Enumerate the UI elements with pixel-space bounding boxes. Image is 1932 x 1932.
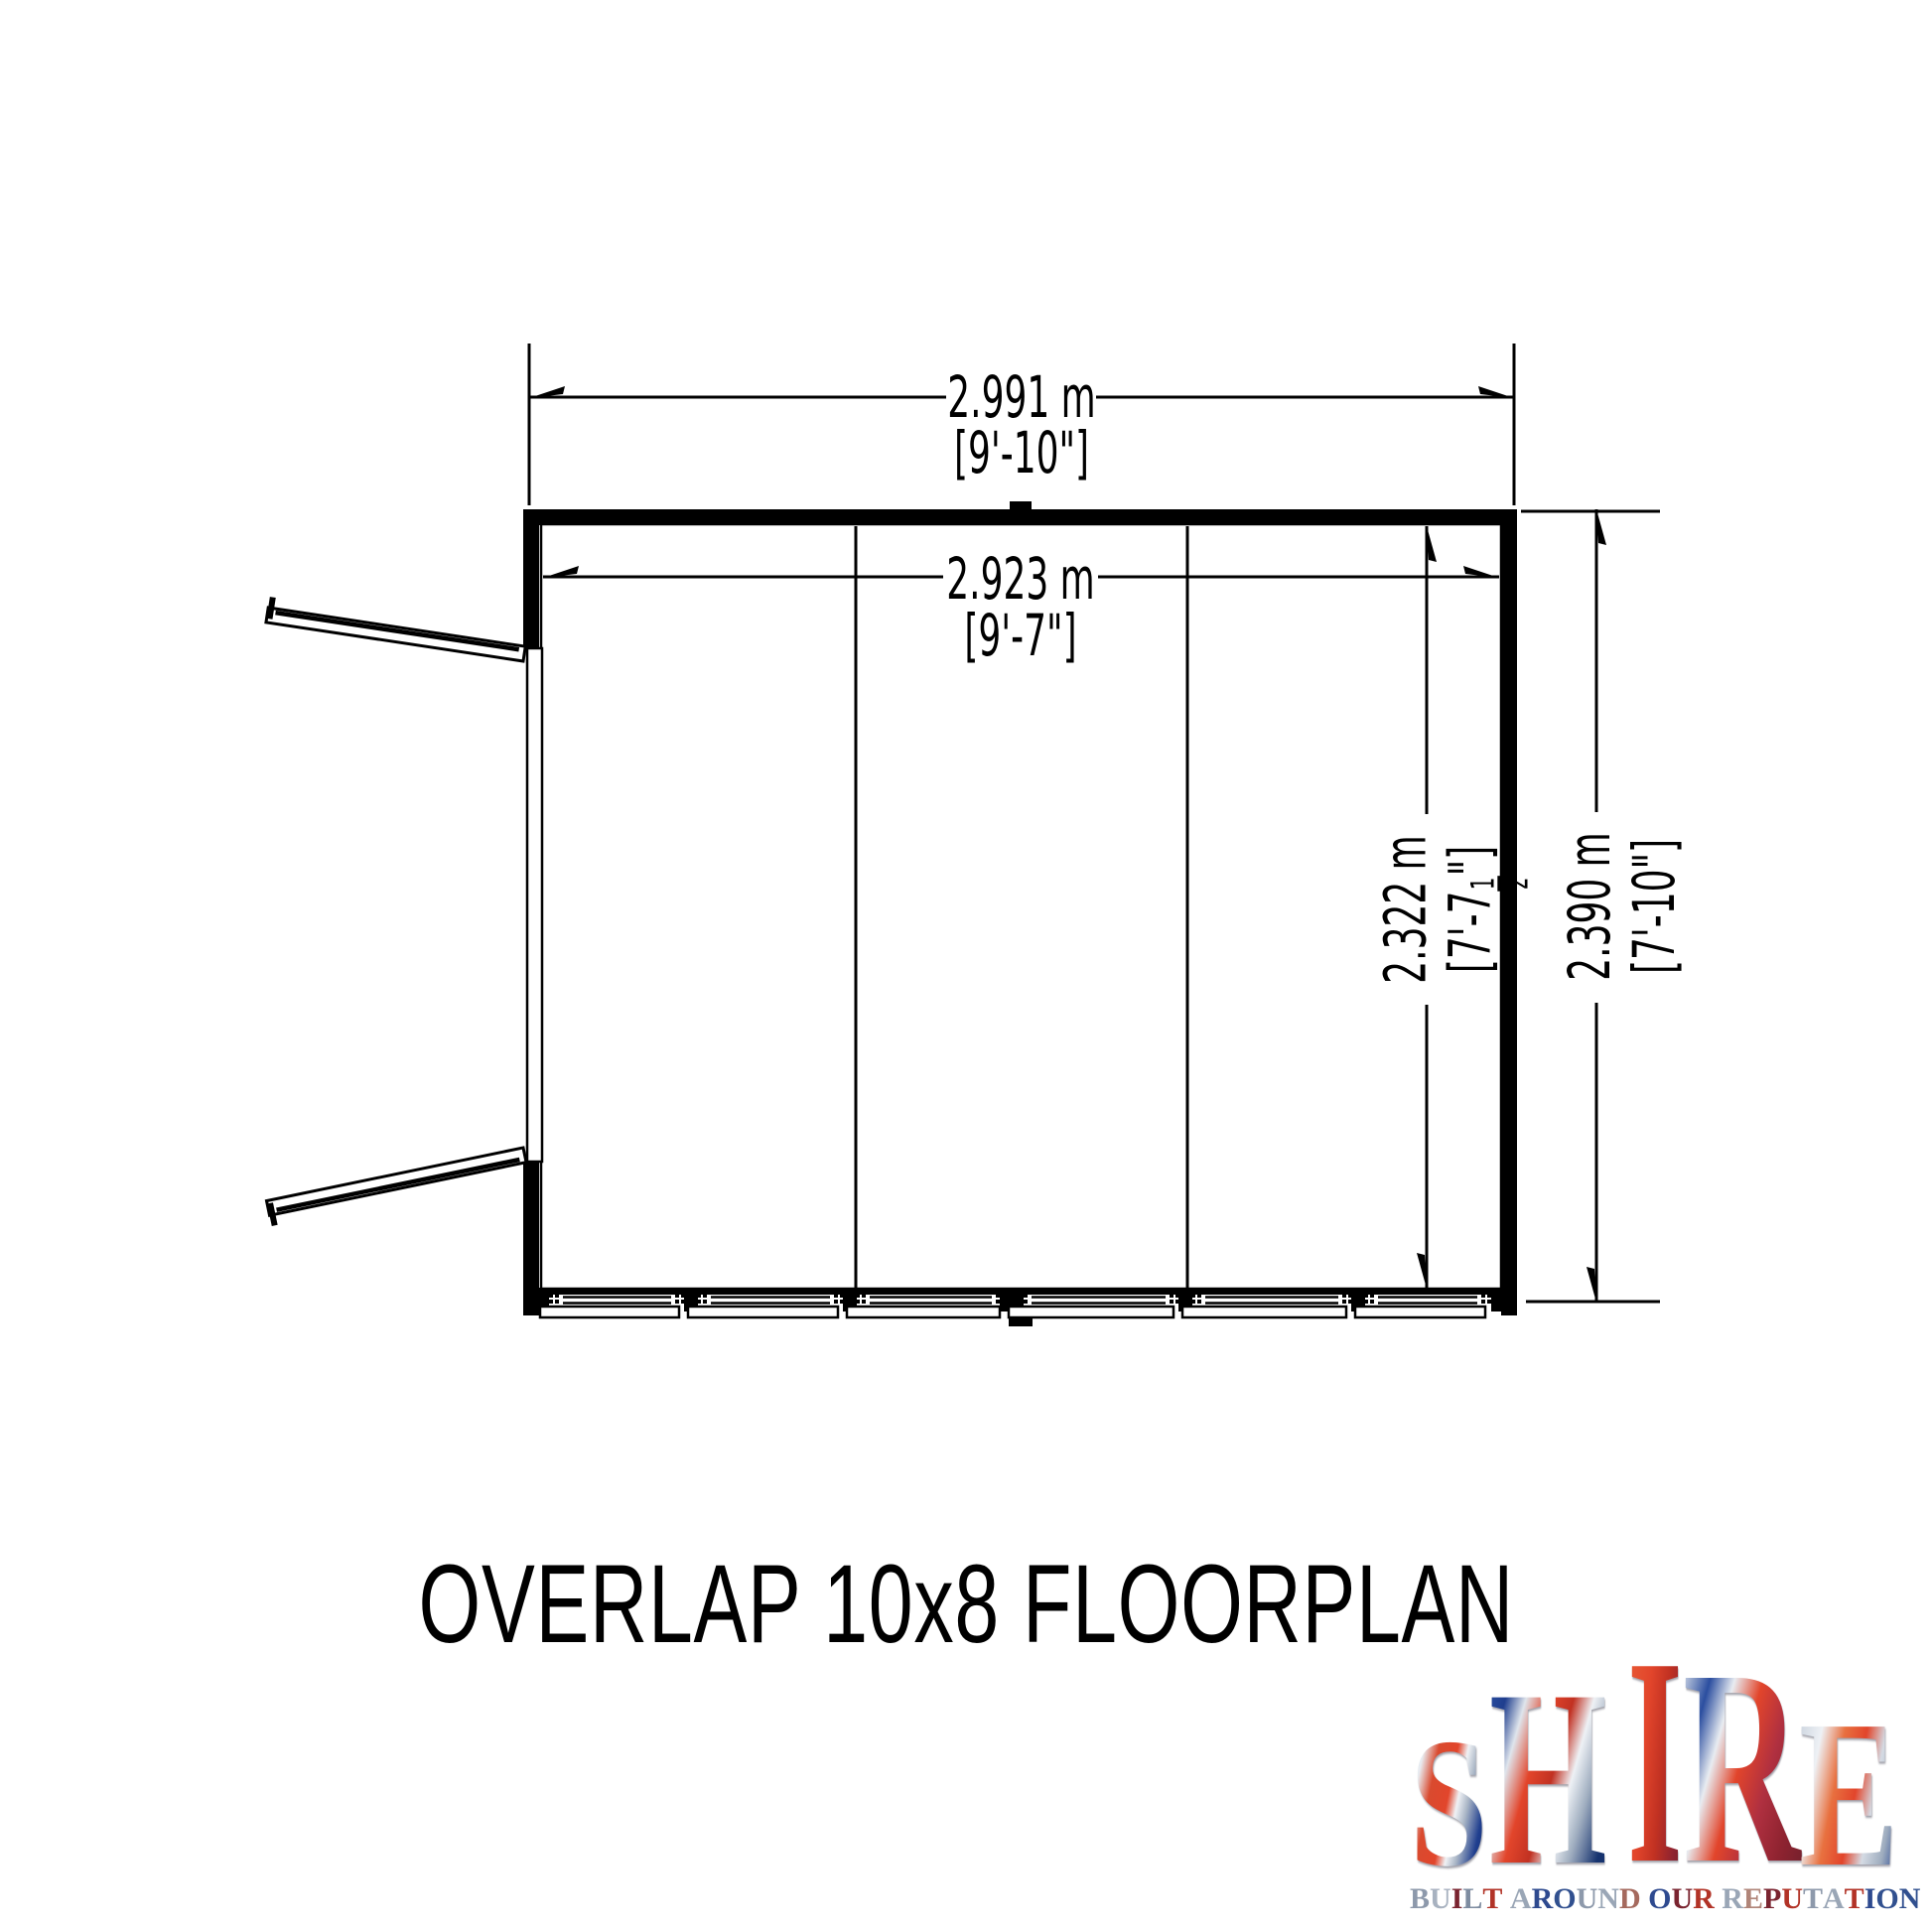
logo-letter-i: I — [1627, 1650, 1683, 1872]
panel-dot — [1197, 1294, 1201, 1298]
tagline-letter: D — [1619, 1884, 1641, 1914]
door-bottom-leaf — [266, 1148, 528, 1226]
panel-dot — [996, 1294, 1000, 1298]
page: 2.991 m [9'-10"] 2.923 m [9'-7"] 2.322 m… — [0, 0, 1932, 1932]
tagline-letter: R — [1693, 1884, 1715, 1914]
panel-dot — [1197, 1300, 1201, 1304]
logo-letter-e: E — [1799, 1715, 1898, 1872]
panel-dot — [555, 1300, 559, 1304]
tagline-letter: E — [1743, 1884, 1763, 1914]
tagline-letter: O — [1553, 1884, 1576, 1914]
panel-dot — [1487, 1300, 1491, 1304]
panel-offset-outline — [540, 1307, 679, 1317]
panel-dot — [549, 1294, 553, 1298]
logo-letter-s: S — [1410, 1734, 1488, 1873]
dim-depth-inner-imperial: [7'-712"] — [1438, 835, 1531, 983]
dim-depth-outer-imperial: [7'-10"] — [1622, 832, 1687, 980]
tagline-letter: T — [1482, 1884, 1502, 1914]
panel-offset-outline — [847, 1307, 1000, 1317]
dim-width-outer-imperial: [9'-10"] — [954, 424, 1089, 482]
panel-dot — [1342, 1294, 1346, 1298]
panel-dot — [703, 1300, 707, 1304]
panel-dot — [834, 1300, 838, 1304]
panel-dot — [1481, 1294, 1485, 1298]
panel-dot — [834, 1294, 838, 1298]
tagline-letter: U — [1577, 1884, 1598, 1914]
panel-dot — [1487, 1294, 1491, 1298]
panel-dot — [549, 1300, 553, 1304]
panel-dot — [862, 1294, 866, 1298]
panel-offset-outline — [1182, 1307, 1346, 1317]
tagline-letter: U — [1430, 1884, 1451, 1914]
panel-dot — [862, 1300, 866, 1304]
tagline-letter: U — [1781, 1884, 1803, 1914]
tagline-letter: T — [1845, 1884, 1864, 1914]
tagline-letter: P — [1763, 1884, 1781, 1914]
panel-dot — [555, 1294, 559, 1298]
door-frame — [527, 648, 542, 1162]
tagline-letter: O — [1648, 1884, 1671, 1914]
tagline-letter: T — [1803, 1884, 1823, 1914]
tagline-letter: N — [1899, 1884, 1921, 1914]
dim-depth-outer: 2.390 m [7'-10"] — [1596, 906, 1836, 1035]
dim-width-inner-meters: 2.923 m — [946, 550, 1094, 608]
page-title: OVERLAP 10x8 FLOORPLAN — [418, 1549, 1513, 1660]
panel-dot — [703, 1294, 707, 1298]
wall-left-upper — [523, 525, 539, 648]
panel-joint-block — [1491, 1288, 1501, 1311]
tagline-letter: I — [1864, 1884, 1876, 1914]
panel-dot — [675, 1300, 679, 1304]
panel-dot — [1024, 1300, 1028, 1304]
tagline-space — [1502, 1884, 1510, 1914]
tagline-letter: O — [1875, 1884, 1898, 1914]
panel-dot — [1370, 1300, 1374, 1304]
panel-dot — [1370, 1294, 1374, 1298]
tagline-letter: L — [1462, 1884, 1482, 1914]
dim-depth-outer-meters: 2.390 m — [1558, 832, 1622, 980]
tagline-letter: B — [1410, 1884, 1430, 1914]
logo-tagline: BUILT AROUND OUR REPUTATION — [1410, 1884, 1902, 1914]
door-top-leaf — [266, 597, 527, 661]
dim-depth-inner-meters: 2.322 m — [1373, 835, 1438, 983]
panel-dot — [1170, 1294, 1173, 1298]
panel-dot — [675, 1294, 679, 1298]
tagline-letter: R — [1722, 1884, 1743, 1914]
panel-dot — [1024, 1294, 1028, 1298]
dim-width-outer-meters: 2.991 m — [947, 368, 1095, 426]
tagline-space — [1641, 1884, 1649, 1914]
panel-offset-outline — [1355, 1307, 1485, 1317]
tagline-letter: N — [1597, 1884, 1619, 1914]
wall-top — [523, 509, 1517, 525]
panel-dot — [996, 1300, 1000, 1304]
dim-width-inner-imperial: [9'-7"] — [964, 607, 1076, 664]
dimension-lines — [529, 344, 1660, 1303]
panel-dot — [1170, 1300, 1173, 1304]
panel-dot — [1342, 1300, 1346, 1304]
logo-letter-r: R — [1683, 1663, 1802, 1872]
tagline-letter: U — [1671, 1884, 1693, 1914]
panel-offset-outline — [1009, 1307, 1173, 1317]
panel-offset-outline — [688, 1307, 838, 1317]
tagline-letter: A — [1823, 1884, 1845, 1914]
tagline-letter: A — [1510, 1884, 1532, 1914]
panel-dot — [1481, 1300, 1485, 1304]
tagline-space — [1715, 1884, 1723, 1914]
wall-top-center-joint — [1010, 501, 1032, 510]
tagline-letter: I — [1451, 1884, 1463, 1914]
tagline-letter: R — [1532, 1884, 1554, 1914]
shire-logo: S H I R E BUILT AROUND OUR REPUTATION — [1408, 1670, 1904, 1918]
door-top-tip-tick — [270, 598, 273, 620]
logo-letter-h: H — [1489, 1684, 1607, 1873]
